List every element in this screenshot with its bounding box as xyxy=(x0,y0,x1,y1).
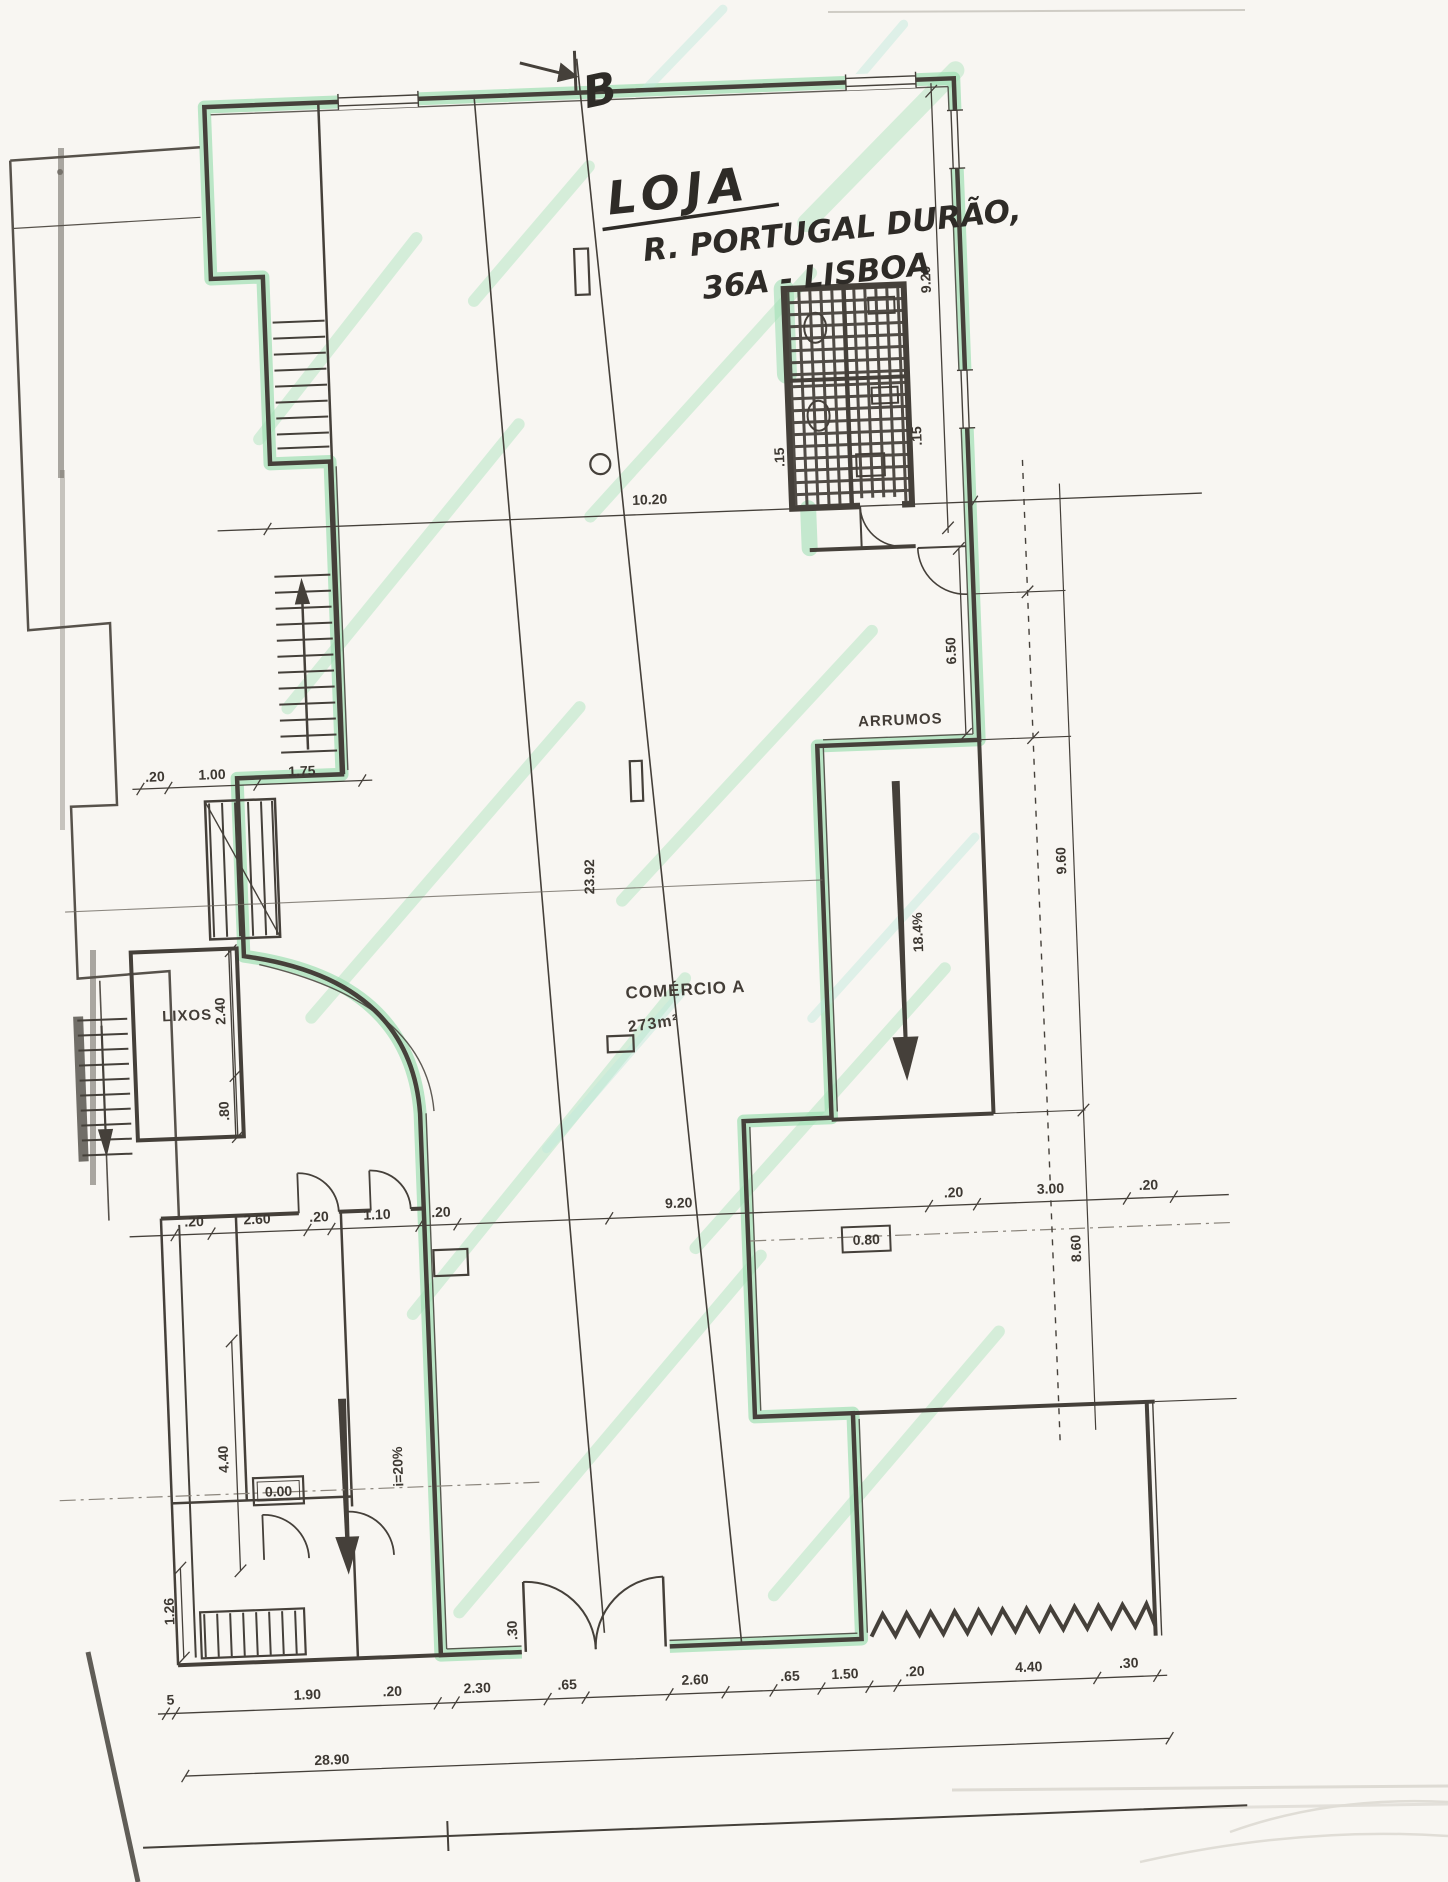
dim-left-1: 1.00 xyxy=(198,766,226,783)
dim-left-0: .20 xyxy=(145,768,165,785)
dim-bot-8: .20 xyxy=(905,1663,925,1680)
dim-mid-7: 3.00 xyxy=(1037,1180,1065,1197)
dim-section-depth: 23.92 xyxy=(581,859,597,894)
dim-bot-1: 1.90 xyxy=(293,1686,321,1703)
dim-bot-2: .20 xyxy=(382,1683,402,1700)
floor-plan-drawing: 0.00 0.80 xyxy=(0,0,1448,1882)
dim-bot-3: 2.30 xyxy=(463,1679,491,1696)
dim-storage-depth: 6.50 xyxy=(942,637,959,665)
dim-door-jamb: .30 xyxy=(504,1620,521,1640)
dim-bot-6: .65 xyxy=(780,1667,800,1684)
level-value-right: 0.80 xyxy=(852,1231,880,1248)
dim-wc-wall-b: .15 xyxy=(908,426,925,446)
dim-overall-width: 28.90 xyxy=(314,1751,350,1768)
dim-top-width: 10.20 xyxy=(632,491,668,508)
dim-mid-6: .20 xyxy=(943,1184,963,1201)
dim-lixos-small: .80 xyxy=(215,1101,232,1121)
dim-stair-depth: 4.40 xyxy=(215,1445,232,1473)
dim-bot-10: .30 xyxy=(1119,1654,1139,1671)
level-value-interior: 0.00 xyxy=(265,1483,293,1500)
dim-mid-2: .20 xyxy=(309,1208,329,1225)
slope-right-ramp: 18.4% xyxy=(909,912,927,953)
dim-mid-3: 1.10 xyxy=(363,1206,391,1223)
dim-right-col-upper: 9.60 xyxy=(1052,847,1069,875)
dim-right-col-lower: 8.60 xyxy=(1067,1234,1084,1262)
dim-mid-5: 9.20 xyxy=(665,1194,693,1211)
dim-lixos-depth: 2.40 xyxy=(211,997,228,1025)
dim-bottom-left: 1.26 xyxy=(160,1597,177,1625)
dim-mid-0: .20 xyxy=(184,1213,204,1230)
dim-mid-8: .20 xyxy=(1138,1176,1158,1193)
slope-left-ramp: i=20% xyxy=(389,1446,407,1487)
dim-bot-7: 1.50 xyxy=(831,1665,859,1682)
dim-wc-wall-a: .15 xyxy=(771,447,788,467)
room-label-arrumos: ARRUMOS xyxy=(858,710,943,730)
dim-mid-4: .20 xyxy=(431,1203,451,1220)
scanned-floor-plan-sheet: 0.00 0.80 xyxy=(0,0,1448,1882)
dim-bot-9: 4.40 xyxy=(1015,1658,1043,1675)
dim-mid-1: 2.60 xyxy=(243,1210,271,1227)
dim-bot-0: 5 xyxy=(166,1691,175,1707)
room-label-lixos: LIXOS xyxy=(162,1006,213,1025)
dim-left-2: 1.75 xyxy=(288,762,316,779)
dim-bot-4: .65 xyxy=(557,1676,577,1693)
dim-bot-5: 2.60 xyxy=(681,1671,709,1688)
